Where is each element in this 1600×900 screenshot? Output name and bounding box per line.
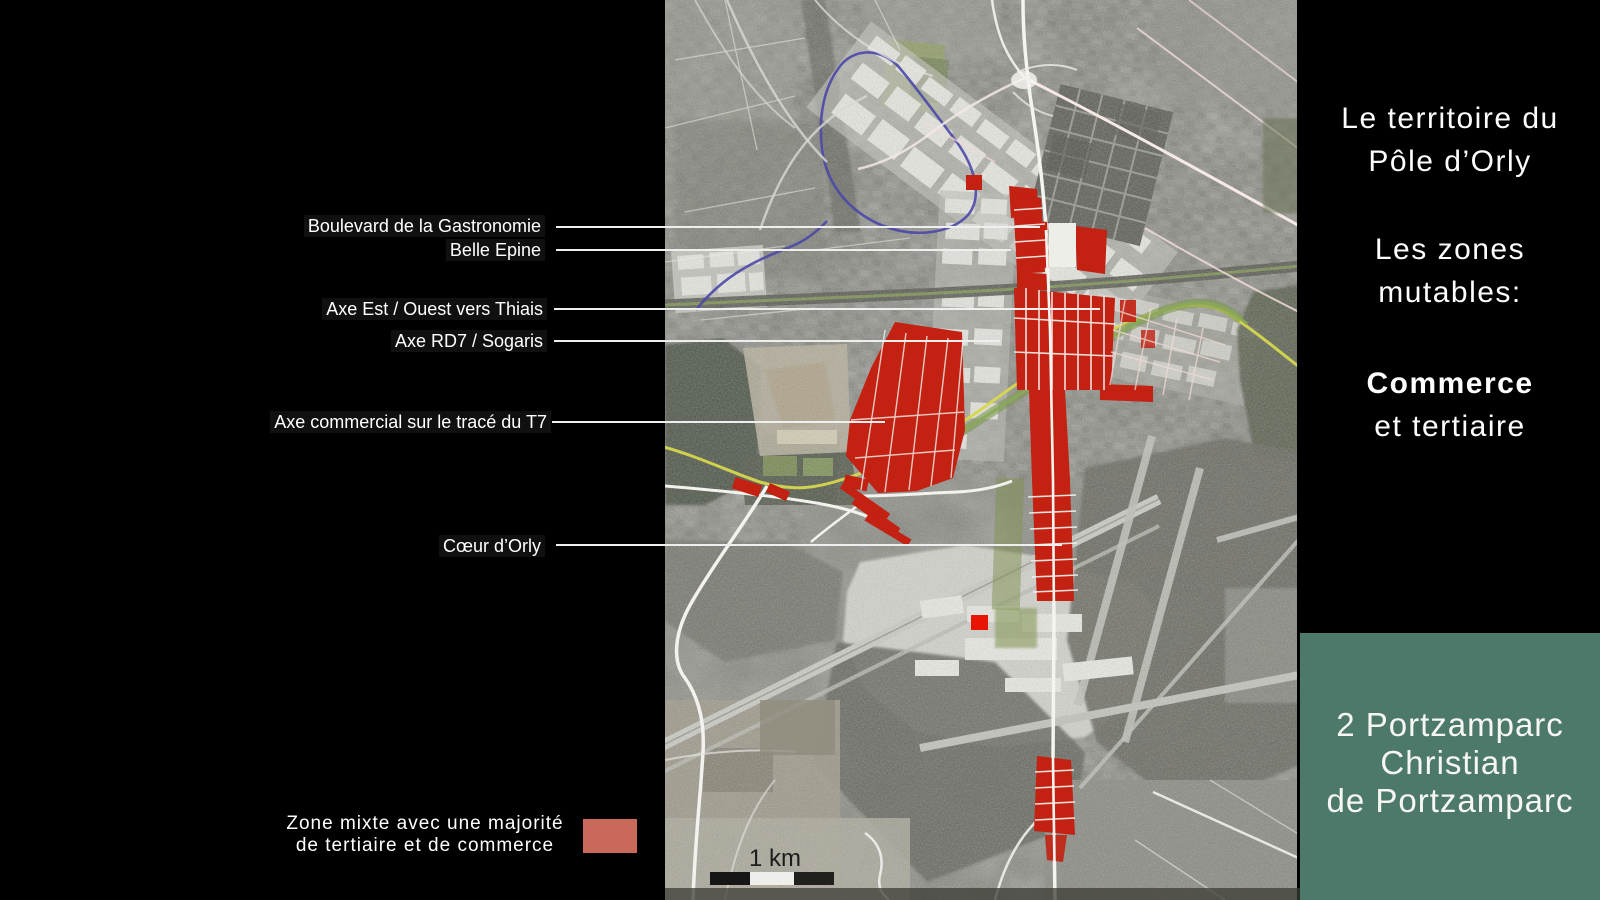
svg-text:1 km: 1 km	[749, 845, 801, 872]
